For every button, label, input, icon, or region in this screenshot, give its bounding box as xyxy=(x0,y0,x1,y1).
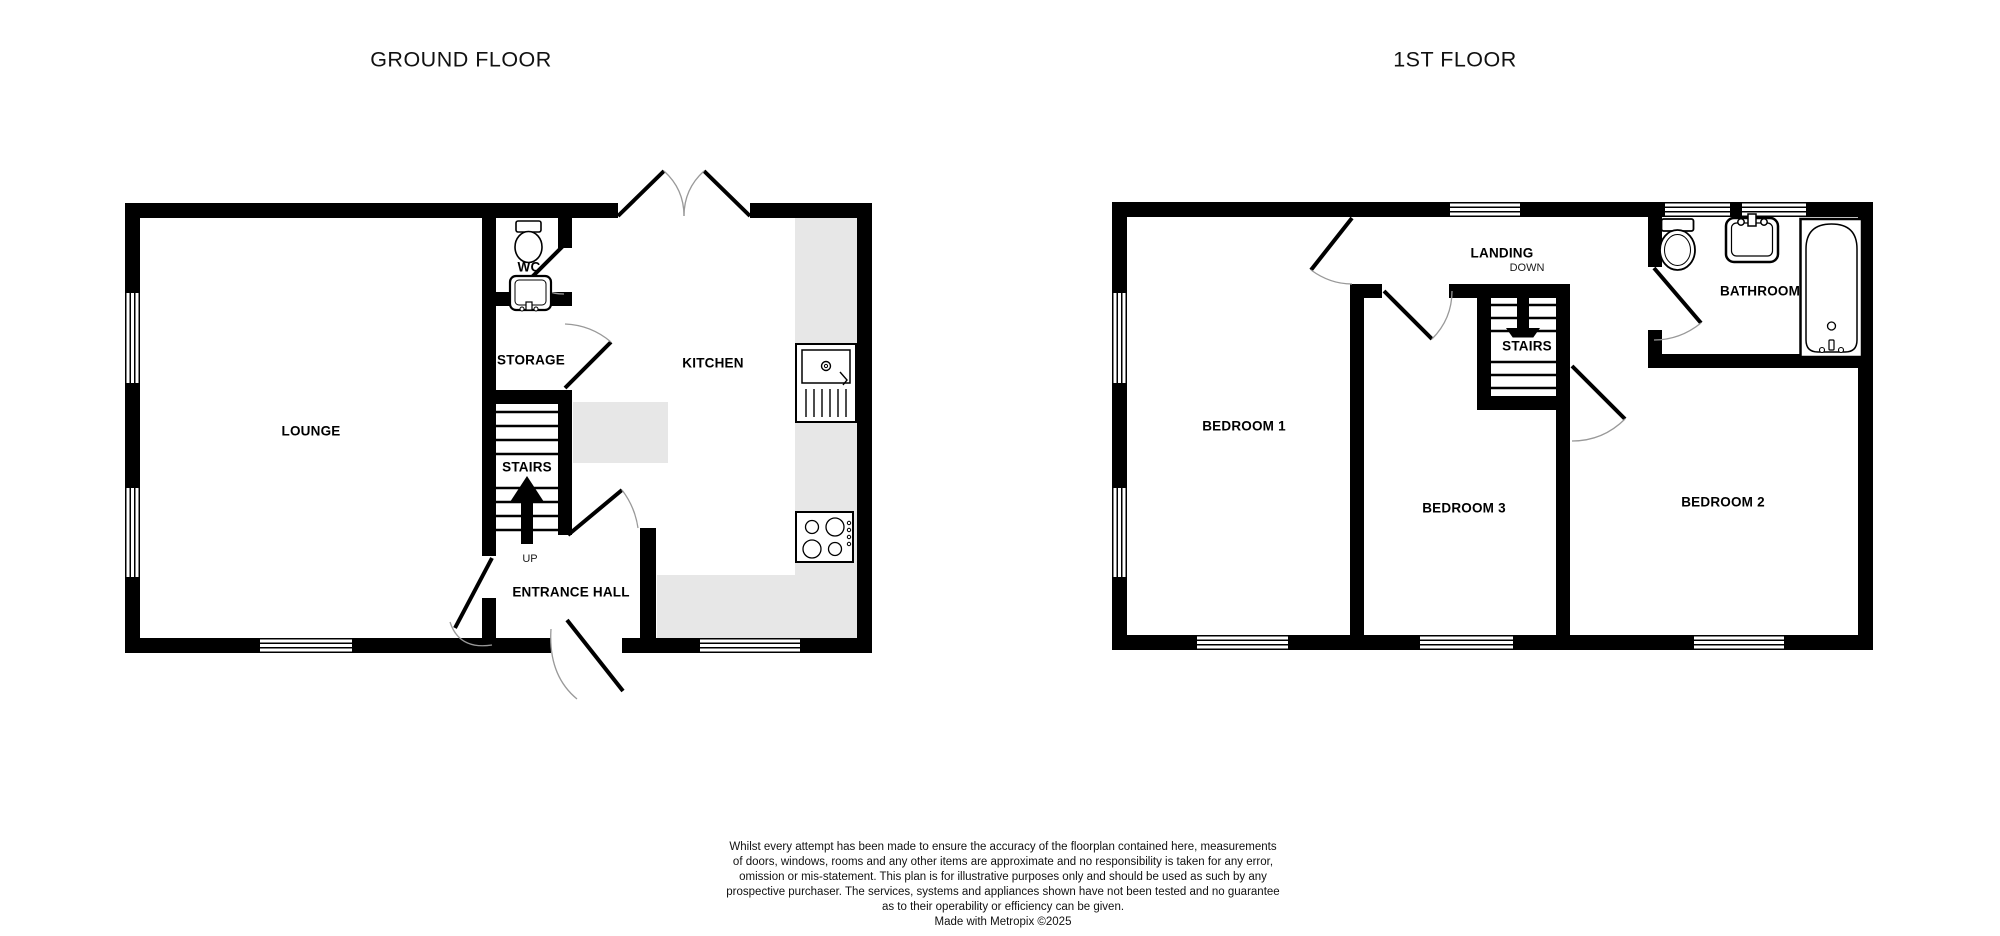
label-down: DOWN xyxy=(1510,262,1545,274)
wc-sink-icon xyxy=(510,276,551,311)
floorplan-graphics xyxy=(0,0,2000,936)
room-label-lounge: LOUNGE xyxy=(282,424,341,439)
disclaimer-line: of doors, windows, rooms and any other i… xyxy=(600,855,1406,870)
room-label-entrance-hall: ENTRANCE HALL xyxy=(512,585,629,600)
room-label-stairs-ground: STAIRS xyxy=(499,459,555,476)
bathroom-sink-icon xyxy=(1726,214,1778,262)
bedroom3-door-leaf xyxy=(1384,291,1432,339)
room-label-storage: STORAGE xyxy=(497,353,565,368)
floorplan-canvas: GROUND FLOOR 1ST FLOOR LOUNGE WC STORAGE… xyxy=(0,0,2000,936)
room-label-bedroom2: BEDROOM 2 xyxy=(1681,495,1765,510)
ground-floor-title: GROUND FLOOR xyxy=(370,48,552,73)
disclaimer-line: as to their operability or efficiency ca… xyxy=(600,900,1406,915)
room-label-bathroom: BATHROOM xyxy=(1720,284,1800,299)
storage-door-leaf xyxy=(565,342,611,388)
kitchen-sink-icon xyxy=(796,344,856,422)
bathroom-toilet-icon xyxy=(1660,219,1695,270)
bathroom-door-leaf xyxy=(1654,268,1701,323)
bedroom2-door-leaf xyxy=(1572,366,1625,419)
label-up: UP xyxy=(522,553,537,565)
lounge-door-leaf xyxy=(455,558,492,628)
disclaimer: Whilst every attempt has been made to en… xyxy=(600,840,1406,929)
bedroom1-door-leaf xyxy=(1311,218,1352,270)
room-label-stairs-first: STAIRS xyxy=(1499,338,1555,355)
stairs-up-arrow-icon xyxy=(510,476,544,544)
first-floor-title: 1ST FLOOR xyxy=(1393,48,1517,73)
room-label-wc: WC xyxy=(518,260,541,275)
kitchen-door-leaf xyxy=(568,490,622,535)
disclaimer-line: omission or mis-statement. This plan is … xyxy=(600,870,1406,885)
french-door-right-leaf xyxy=(704,171,750,216)
toilet-icon xyxy=(515,221,542,263)
french-door-left-leaf xyxy=(618,171,664,216)
room-label-kitchen: KITCHEN xyxy=(682,356,743,371)
disclaimer-line: Whilst every attempt has been made to en… xyxy=(600,840,1406,855)
room-label-landing: LANDING xyxy=(1471,246,1534,261)
hob-icon xyxy=(796,512,853,562)
room-label-bedroom1: BEDROOM 1 xyxy=(1202,419,1286,434)
disclaimer-line: prospective purchaser. The services, sys… xyxy=(600,885,1406,900)
front-door-leaf xyxy=(567,620,623,691)
disclaimer-credit: Made with Metropix ©2025 xyxy=(600,915,1406,930)
bath-icon xyxy=(1801,219,1863,357)
room-label-bedroom3: BEDROOM 3 xyxy=(1422,501,1506,516)
